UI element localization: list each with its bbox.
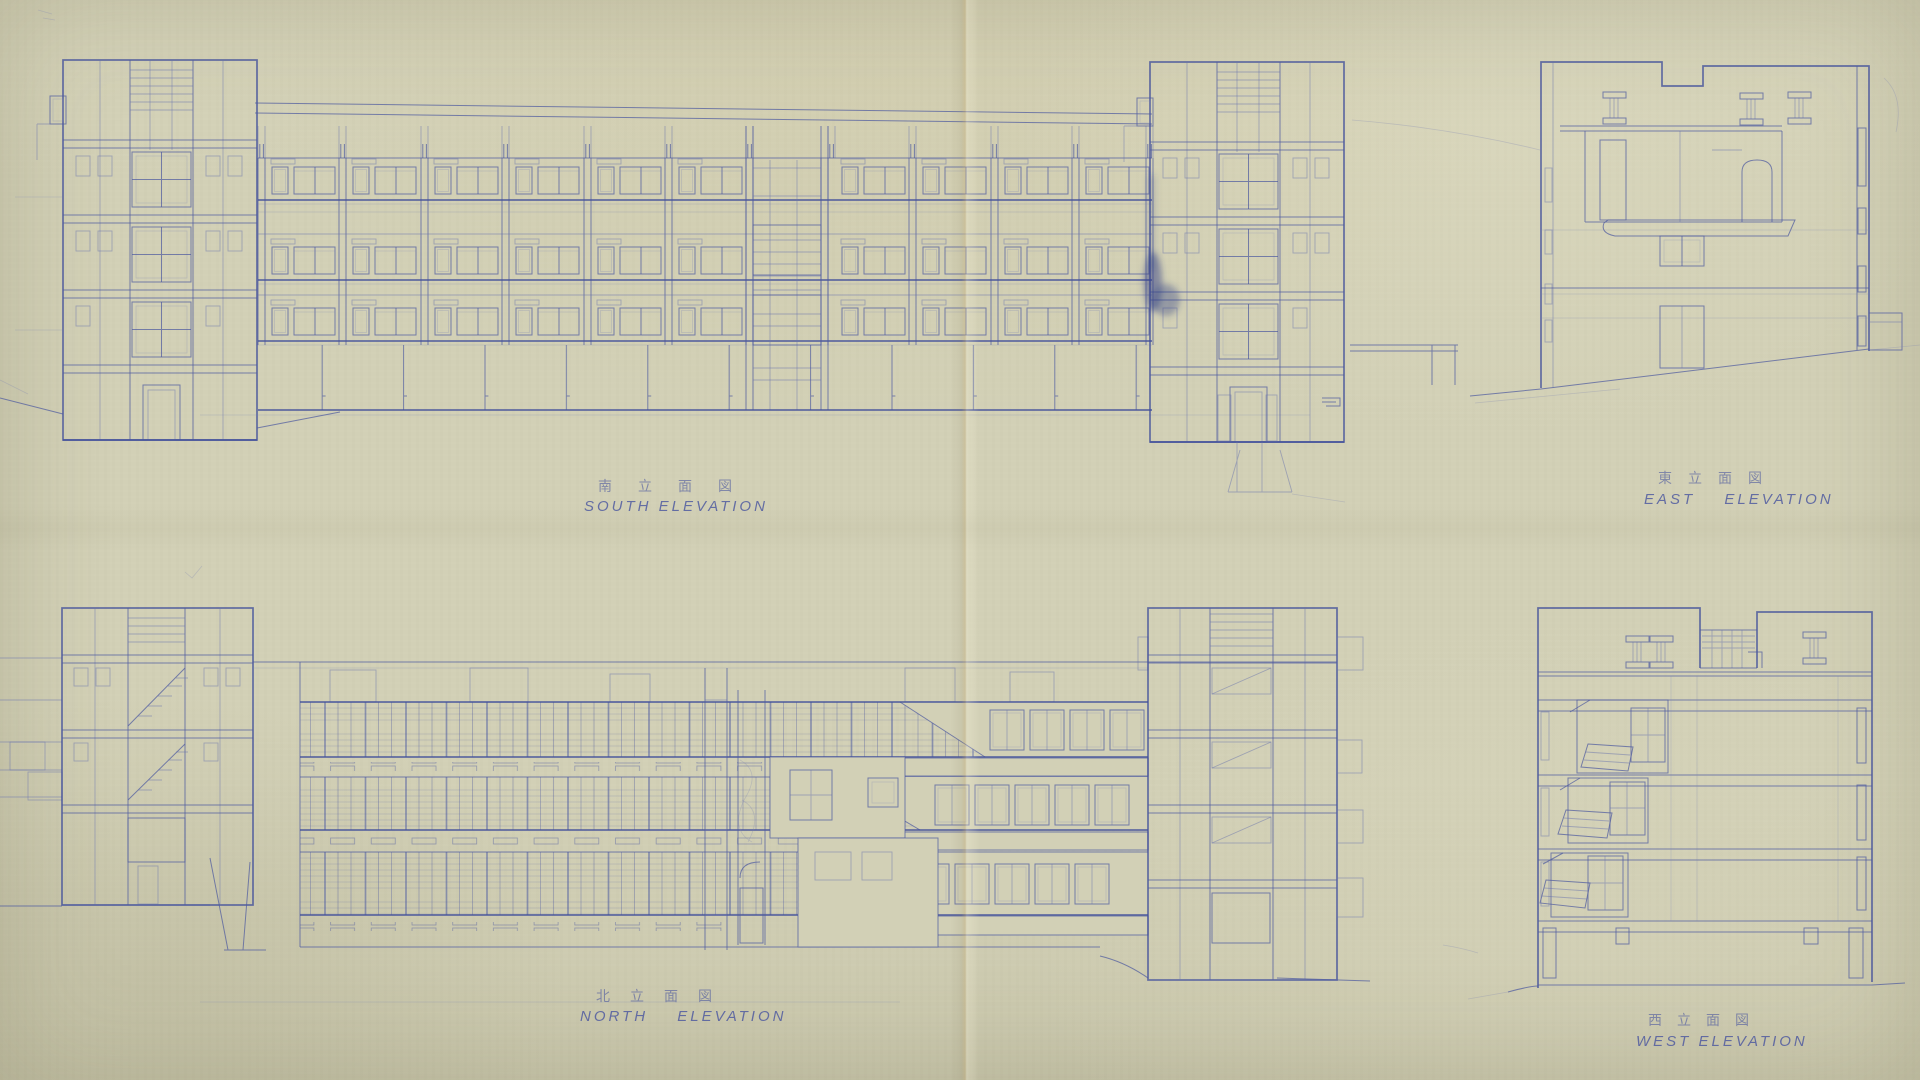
west-elevation-label-jp: 西立面図 <box>1648 1010 1764 1030</box>
east-elevation-label-jp: 東立面図 <box>1658 468 1778 488</box>
ink-smudge <box>1144 175 1180 316</box>
east-elevation-label-en: EAST ELEVATION <box>1644 491 1834 508</box>
north-elevation-drawing <box>0 566 1478 1002</box>
north-right-tower <box>1100 608 1478 981</box>
north-elevation-label-en: NORTH ELEVATION <box>580 1008 786 1025</box>
west-balcony-2 <box>1558 778 1648 843</box>
east-elevation-drawing <box>1470 62 1920 403</box>
west-elevation-label-en: WEST ELEVATION <box>1636 1033 1808 1050</box>
south-elevation-drawing <box>0 10 1540 502</box>
blueprint-sheet: 南立面図 SOUTH ELEVATION 東立面図 EAST ELEVATION… <box>0 0 1920 1080</box>
elevation-drawings <box>0 0 1920 1080</box>
west-balcony-3 <box>1540 853 1628 917</box>
south-elevation-label-en: SOUTH ELEVATION <box>584 498 768 515</box>
west-elevation-drawing <box>1468 608 1905 999</box>
north-elevation-label-jp: 北立面図 <box>596 986 732 1006</box>
south-elevation-label-jp: 南立面図 <box>598 476 758 496</box>
